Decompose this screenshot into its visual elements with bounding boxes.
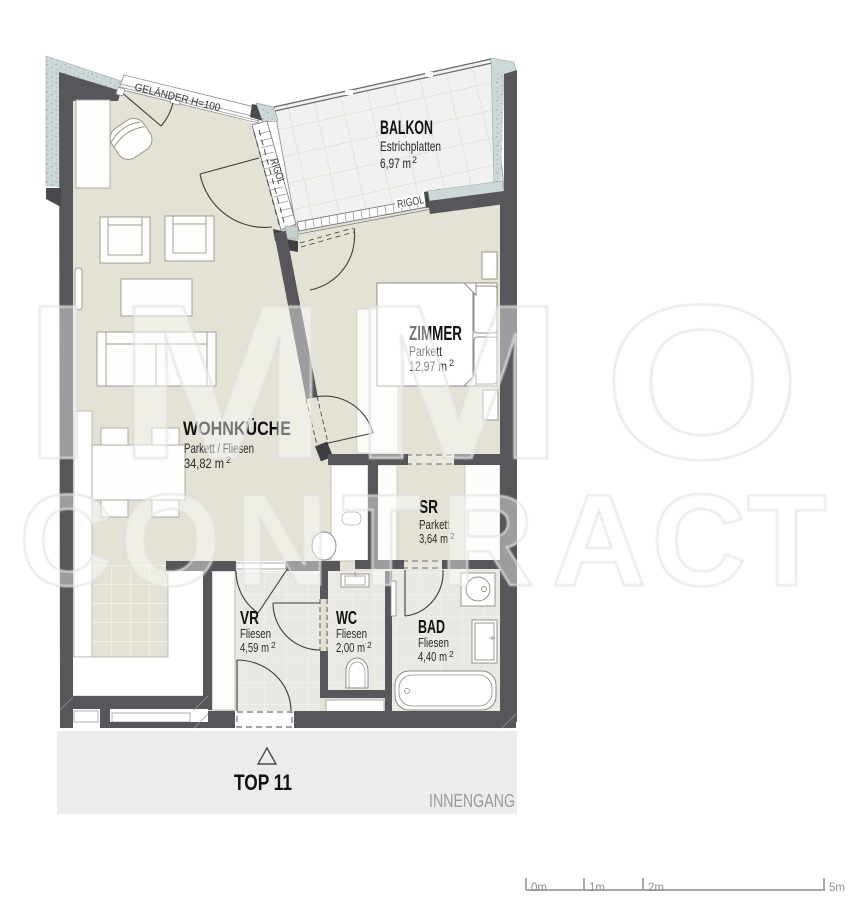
svg-text:2m: 2m: [648, 882, 664, 894]
svg-text:INNENGANG: INNENGANG: [429, 791, 515, 811]
svg-text:0m: 0m: [531, 882, 547, 894]
svg-text:2: 2: [412, 155, 417, 165]
svg-text:Fliesen: Fliesen: [240, 626, 271, 641]
svg-text:5m: 5m: [829, 882, 845, 894]
svg-text:2: 2: [271, 640, 276, 650]
svg-text:1m: 1m: [589, 882, 605, 894]
svg-text:BALKON: BALKON: [380, 118, 433, 139]
svg-text:Estrichplatten: Estrichplatten: [380, 138, 441, 154]
svg-text:Fliesen: Fliesen: [418, 635, 449, 650]
svg-text:TOP 11: TOP 11: [234, 770, 292, 795]
svg-text:Fliesen: Fliesen: [336, 626, 367, 641]
svg-text:6,97 m: 6,97 m: [380, 155, 411, 171]
svg-text:4,40 m: 4,40 m: [418, 649, 447, 664]
svg-text:2: 2: [449, 649, 454, 659]
svg-text:4,59 m: 4,59 m: [240, 640, 269, 655]
svg-text:BAD: BAD: [418, 617, 445, 637]
svg-text:2: 2: [367, 640, 372, 650]
svg-text:2,00 m: 2,00 m: [336, 640, 365, 655]
